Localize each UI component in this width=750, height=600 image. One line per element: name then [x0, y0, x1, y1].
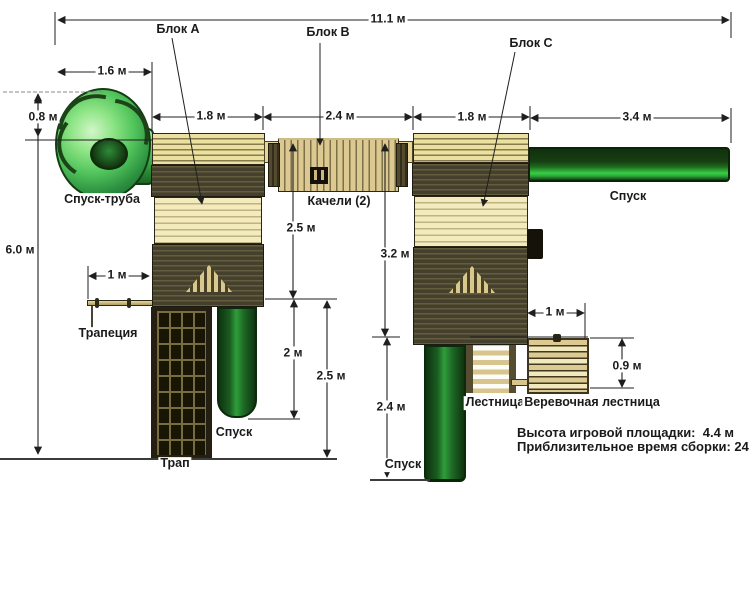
- dim-total-height: 6.0 м: [4, 243, 37, 256]
- trapeze-ring: [127, 298, 131, 308]
- block-c-platform-band: [414, 196, 528, 247]
- dim-block-b-width: 2.4 м: [324, 109, 357, 122]
- main-slide: [528, 147, 730, 182]
- block-a-dark-band: [151, 165, 265, 197]
- label-block-c: Блок C: [507, 37, 554, 51]
- swing-hanger-slot: [314, 170, 317, 180]
- label-cargo-net: Трап: [158, 457, 191, 471]
- swing-beam-clamp-right: [396, 143, 408, 187]
- dim-swing-beam-height: 2.5 м: [285, 221, 318, 234]
- playground-diagram: 11.1 м 1.6 м 0.8 м 1.8 м 2.4 м 1.8 м 3.4…: [0, 0, 750, 600]
- steering-wheel-mount: [527, 229, 543, 259]
- dim-block-c-width: 1.8 м: [456, 110, 489, 123]
- label-slide-lower: Спуск: [214, 426, 254, 440]
- block-c-climb-triangle: [449, 266, 495, 293]
- label-slide-main: Спуск: [608, 190, 648, 204]
- label-swings: Качели (2): [305, 195, 372, 209]
- block-a-climb-triangle: [186, 265, 232, 292]
- rear-tube-slide: [424, 345, 466, 482]
- note-assembly-time: Приблизительное время сборки: 24 часа: [515, 440, 750, 454]
- trapeze-ring: [95, 298, 99, 308]
- dim-spiral-width: 1.6 м: [96, 64, 129, 77]
- swing-hanger: [310, 167, 328, 184]
- dim-rope-ladder-height: 0.9 м: [611, 359, 644, 372]
- label-slide-rear: Спуск: [383, 458, 423, 472]
- dim-tube-c-drop: 2.4 м: [375, 400, 408, 413]
- dim-trapeze-offset: 1 м: [106, 268, 129, 281]
- dim-total-width: 11.1 м: [369, 12, 408, 25]
- cargo-net: [151, 307, 212, 459]
- label-block-a: Блок A: [154, 23, 201, 37]
- spiral-tube-opening: [90, 138, 128, 170]
- swing-hanger-slot: [321, 170, 324, 180]
- dim-block-a-width: 1.8 м: [195, 109, 228, 122]
- dim-spiral-height: 0.8 м: [27, 110, 60, 123]
- rope-ladder-knob: [553, 334, 561, 342]
- label-ladder: Лестница: [464, 396, 527, 410]
- block-c-base-band: [413, 247, 528, 345]
- swing-beam-clamp-left: [268, 143, 280, 187]
- dim-ladder-offset: 1 м: [544, 305, 567, 318]
- block-a-roof-band: [152, 133, 265, 165]
- label-rope-ladder: Веревочная лестница: [522, 396, 662, 410]
- block-c-roof-band: [413, 133, 529, 163]
- lower-tube-slide: [217, 307, 257, 418]
- block-c-dark-band: [412, 163, 529, 196]
- block-a-base-band: [152, 244, 264, 307]
- block-a-platform-band: [154, 197, 262, 244]
- rope-ladder: [527, 338, 589, 394]
- dim-block-c-height: 3.2 м: [379, 247, 412, 260]
- swing-beam: [278, 138, 399, 192]
- label-spiral-slide: Спуск-труба: [62, 193, 142, 207]
- dim-slide-length: 3.4 м: [621, 110, 654, 123]
- ground-lines: [0, 459, 430, 480]
- dim-platform-height: 2.5 м: [315, 369, 348, 382]
- ladder: [466, 341, 516, 393]
- label-block-b: Блок B: [304, 26, 351, 40]
- dim-slide-drop: 2 м: [282, 346, 305, 359]
- label-trapeze: Трапеция: [77, 327, 140, 341]
